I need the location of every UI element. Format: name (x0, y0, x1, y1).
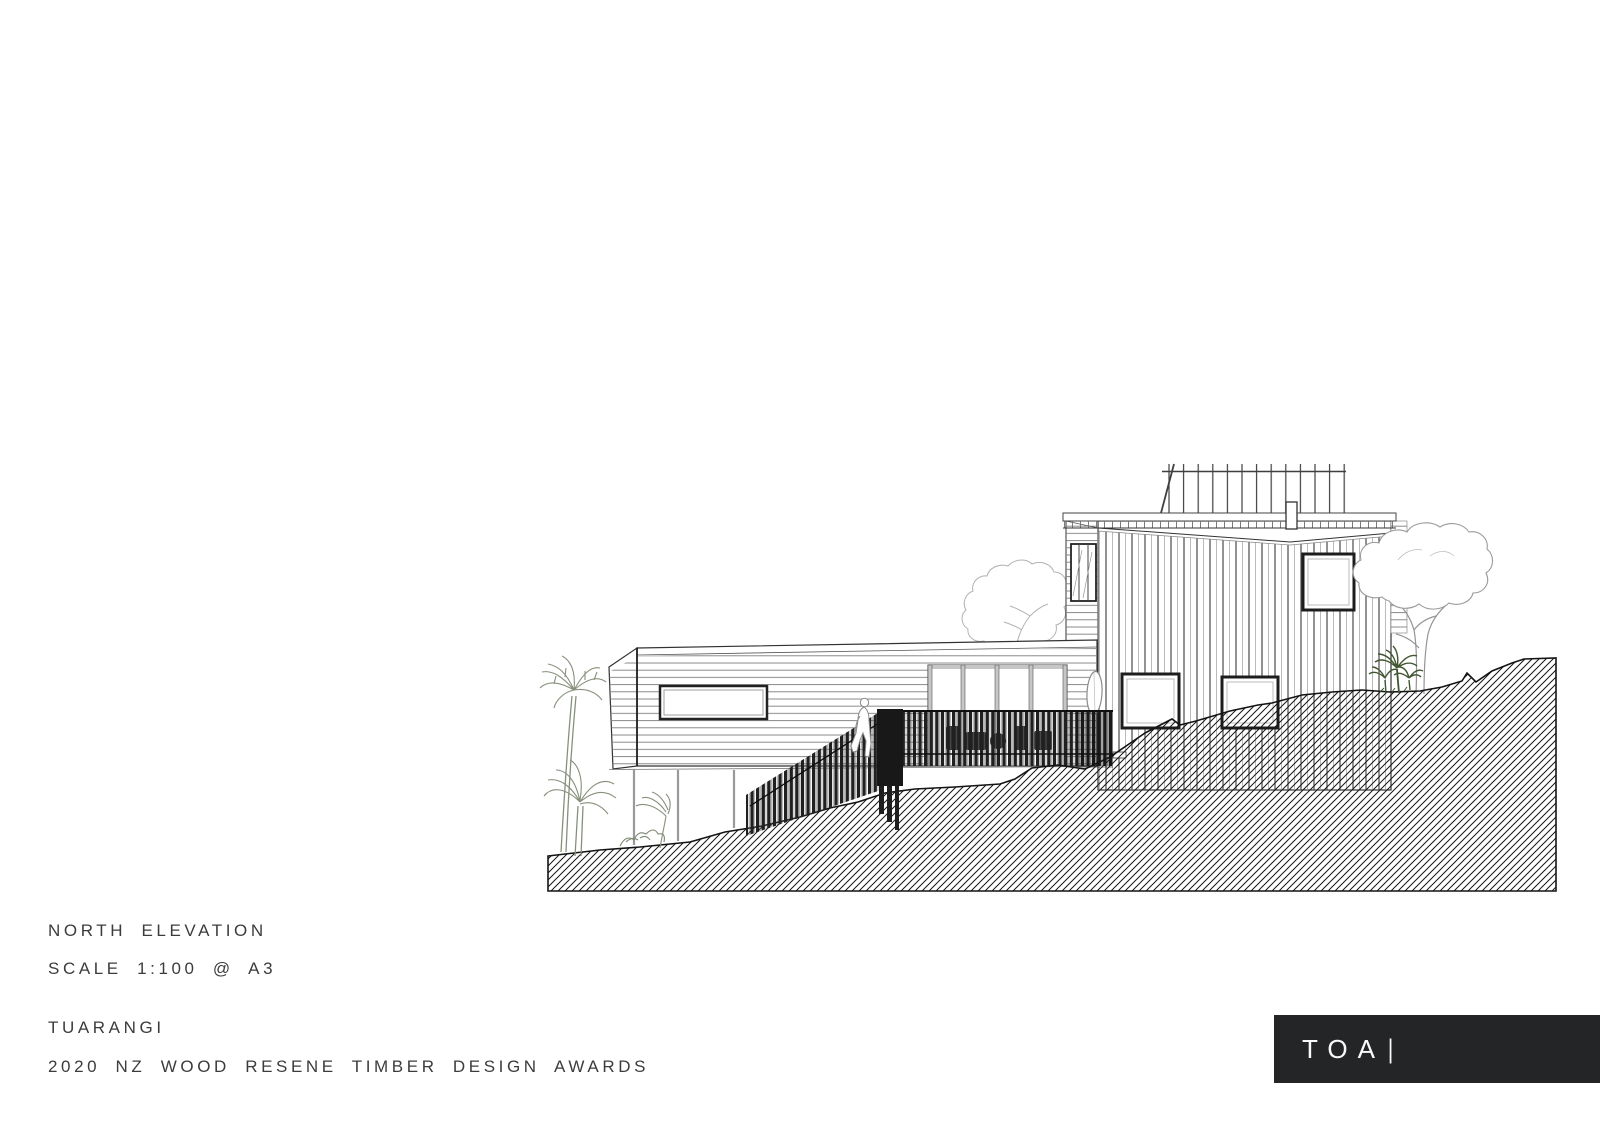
project-name: TUARANGI (48, 1018, 165, 1038)
tower-window-upper (1303, 554, 1354, 610)
wing-window (660, 686, 767, 719)
scale-note: SCALE 1:100 @ A3 (48, 959, 276, 979)
award-line: 2020 NZ WOOD RESENE TIMBER DESIGN AWARDS (48, 1057, 649, 1077)
drawing-title: NORTH ELEVATION (48, 921, 267, 941)
flue (1286, 502, 1297, 529)
stair-newel-block (877, 709, 903, 786)
roof-deck-balustrade (1161, 464, 1346, 513)
wing-end-facet (609, 648, 637, 769)
deck-slat-screen (897, 710, 1126, 768)
toa-logo-divider: | (1388, 1034, 1394, 1065)
louvre-window (1071, 544, 1096, 601)
presentation-sheet: NORTH ELEVATION SCALE 1:100 @ A3 TUARANG… (0, 0, 1600, 1131)
toa-logo-text: TOA (1302, 1034, 1385, 1065)
parapet-cap (1063, 513, 1396, 521)
toa-logo-plate: TOA | (1274, 1015, 1600, 1083)
cap-flashing (1063, 521, 1396, 528)
